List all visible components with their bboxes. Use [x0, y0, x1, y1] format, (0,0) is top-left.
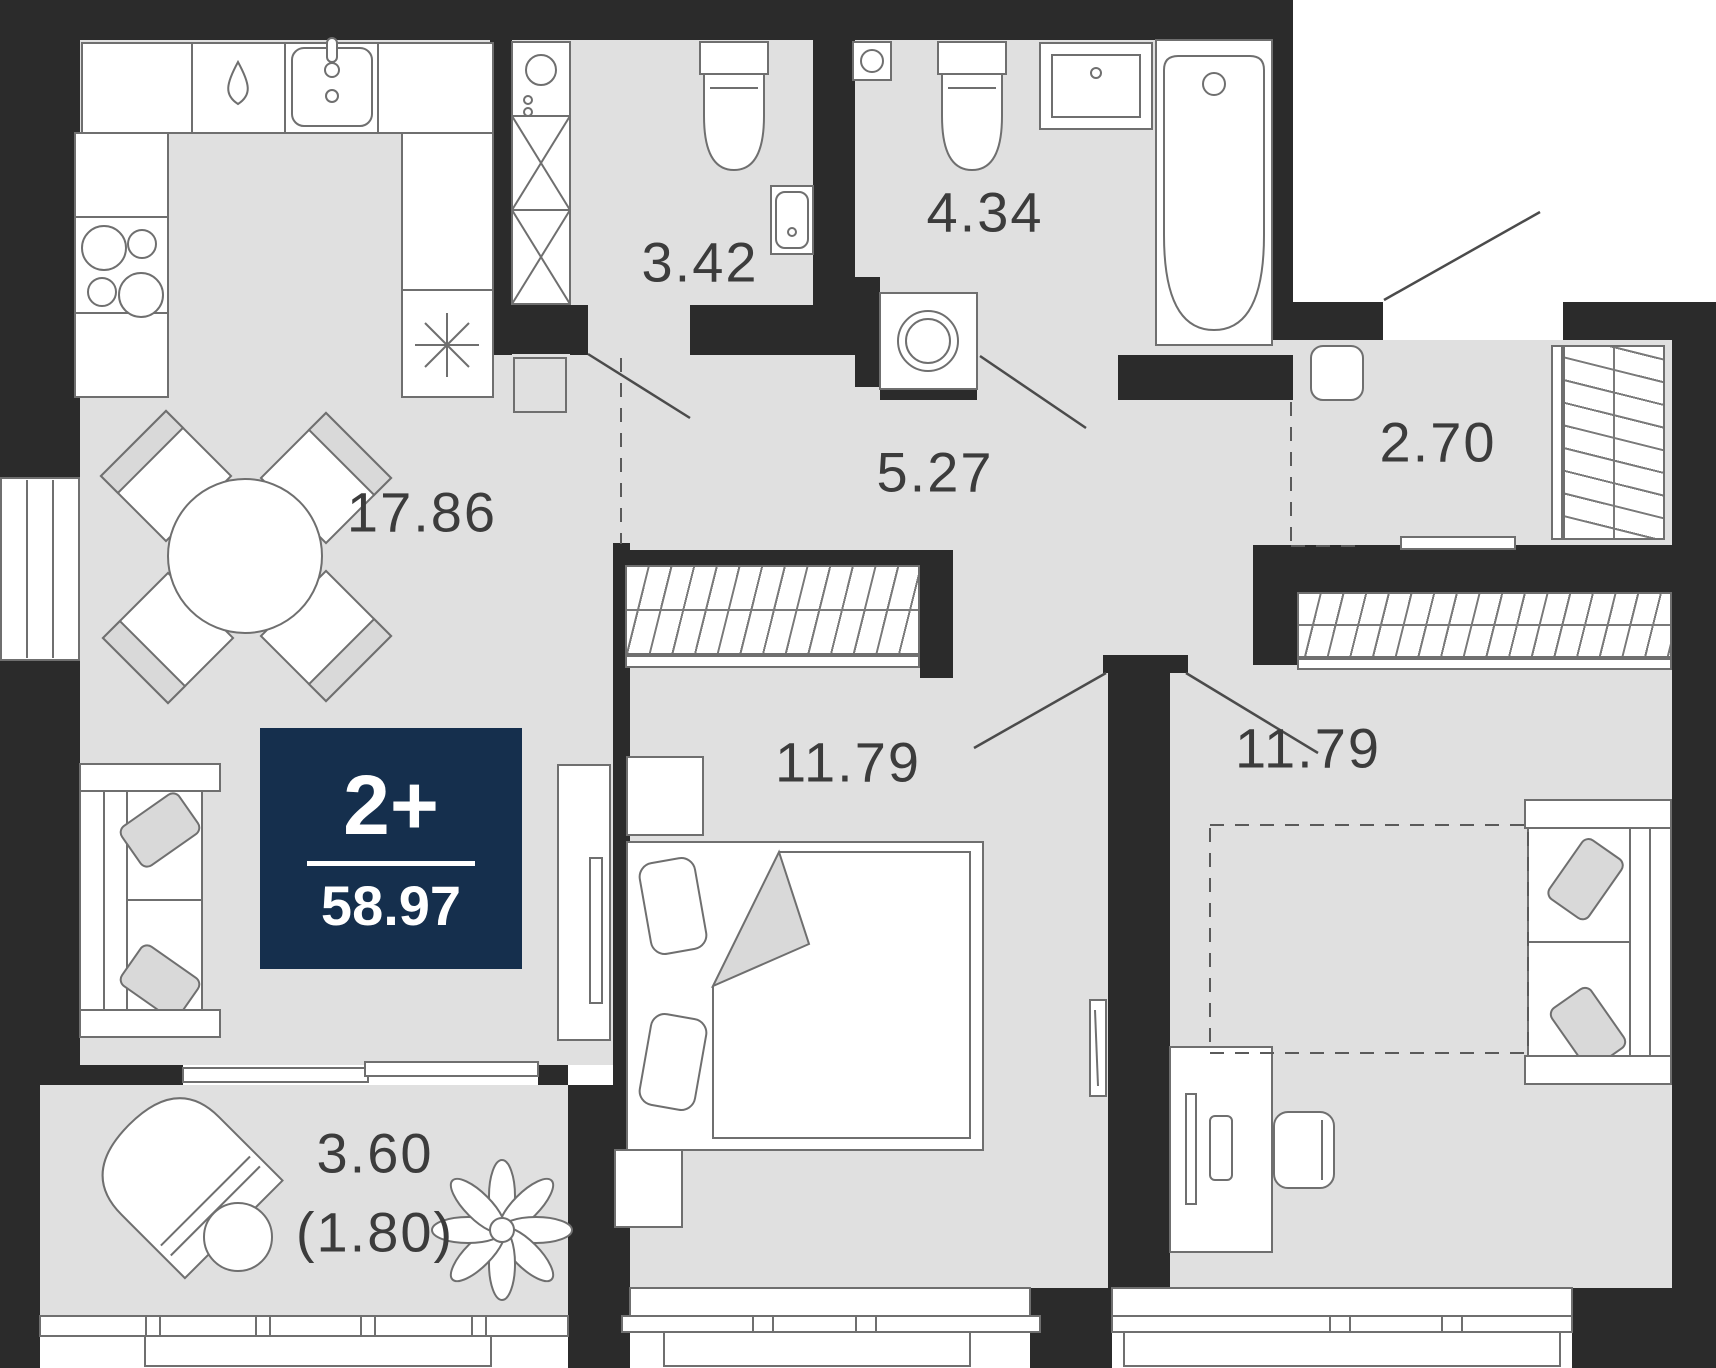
- floor-plan: 17.86 3.42 4.34 5.27 2.70 11.79 11.79 3.…: [0, 0, 1716, 1368]
- boiler-icon: [853, 42, 891, 80]
- room-label-balcony: 3.60: [317, 1121, 434, 1186]
- badge-divider: [307, 861, 475, 866]
- badge-total-area: 58.97: [321, 878, 461, 934]
- badge-rooms-count: 2+: [343, 763, 439, 847]
- desk-icon: [1170, 1047, 1272, 1252]
- window-icon: [1112, 1288, 1572, 1366]
- room-label-bedroom-2: 11.79: [1235, 716, 1381, 781]
- washing-machine-icon: [880, 293, 977, 389]
- tv-icon: [1090, 1000, 1106, 1096]
- toilet-icon: [938, 42, 1006, 170]
- boiler-icon: [512, 42, 570, 116]
- room-label-hallway: 5.27: [877, 440, 994, 505]
- window-icon: [622, 1288, 1040, 1366]
- room-label-bedroom-1: 11.79: [775, 730, 921, 795]
- room-label-bathroom: 4.34: [927, 180, 1044, 245]
- room-label-balcony-reduced: (1.80): [296, 1200, 454, 1265]
- vent-shaft-icon: [512, 116, 570, 412]
- balcony-door-icon: [183, 1062, 538, 1082]
- stool-icon: [1311, 346, 1363, 400]
- fixtures-layer: [0, 0, 1716, 1368]
- sofa-icon: [1525, 800, 1671, 1084]
- room-label-wc: 3.42: [642, 230, 759, 295]
- bathtub-icon: [1156, 40, 1272, 345]
- dining-table-icon: [168, 479, 322, 633]
- bed-icon: [627, 842, 983, 1150]
- room-label-living: 17.86: [347, 480, 497, 545]
- balcony-glazing-icon: [40, 1316, 568, 1366]
- window-icon: [1, 478, 79, 660]
- room-label-closet: 2.70: [1380, 410, 1497, 475]
- sofa-icon: [80, 764, 220, 1037]
- tv-console: [558, 765, 610, 1040]
- toilet-icon: [700, 42, 768, 170]
- kitchen-counter: [75, 43, 493, 397]
- kitchen-sink-icon: [292, 38, 372, 126]
- apartment-badge: 2+ 58.97: [260, 728, 522, 969]
- washbasin-small-icon: [771, 186, 813, 254]
- desk-chair-icon: [1274, 1112, 1334, 1188]
- side-table-icon: [204, 1203, 272, 1271]
- washbasin-icon: [1040, 43, 1152, 129]
